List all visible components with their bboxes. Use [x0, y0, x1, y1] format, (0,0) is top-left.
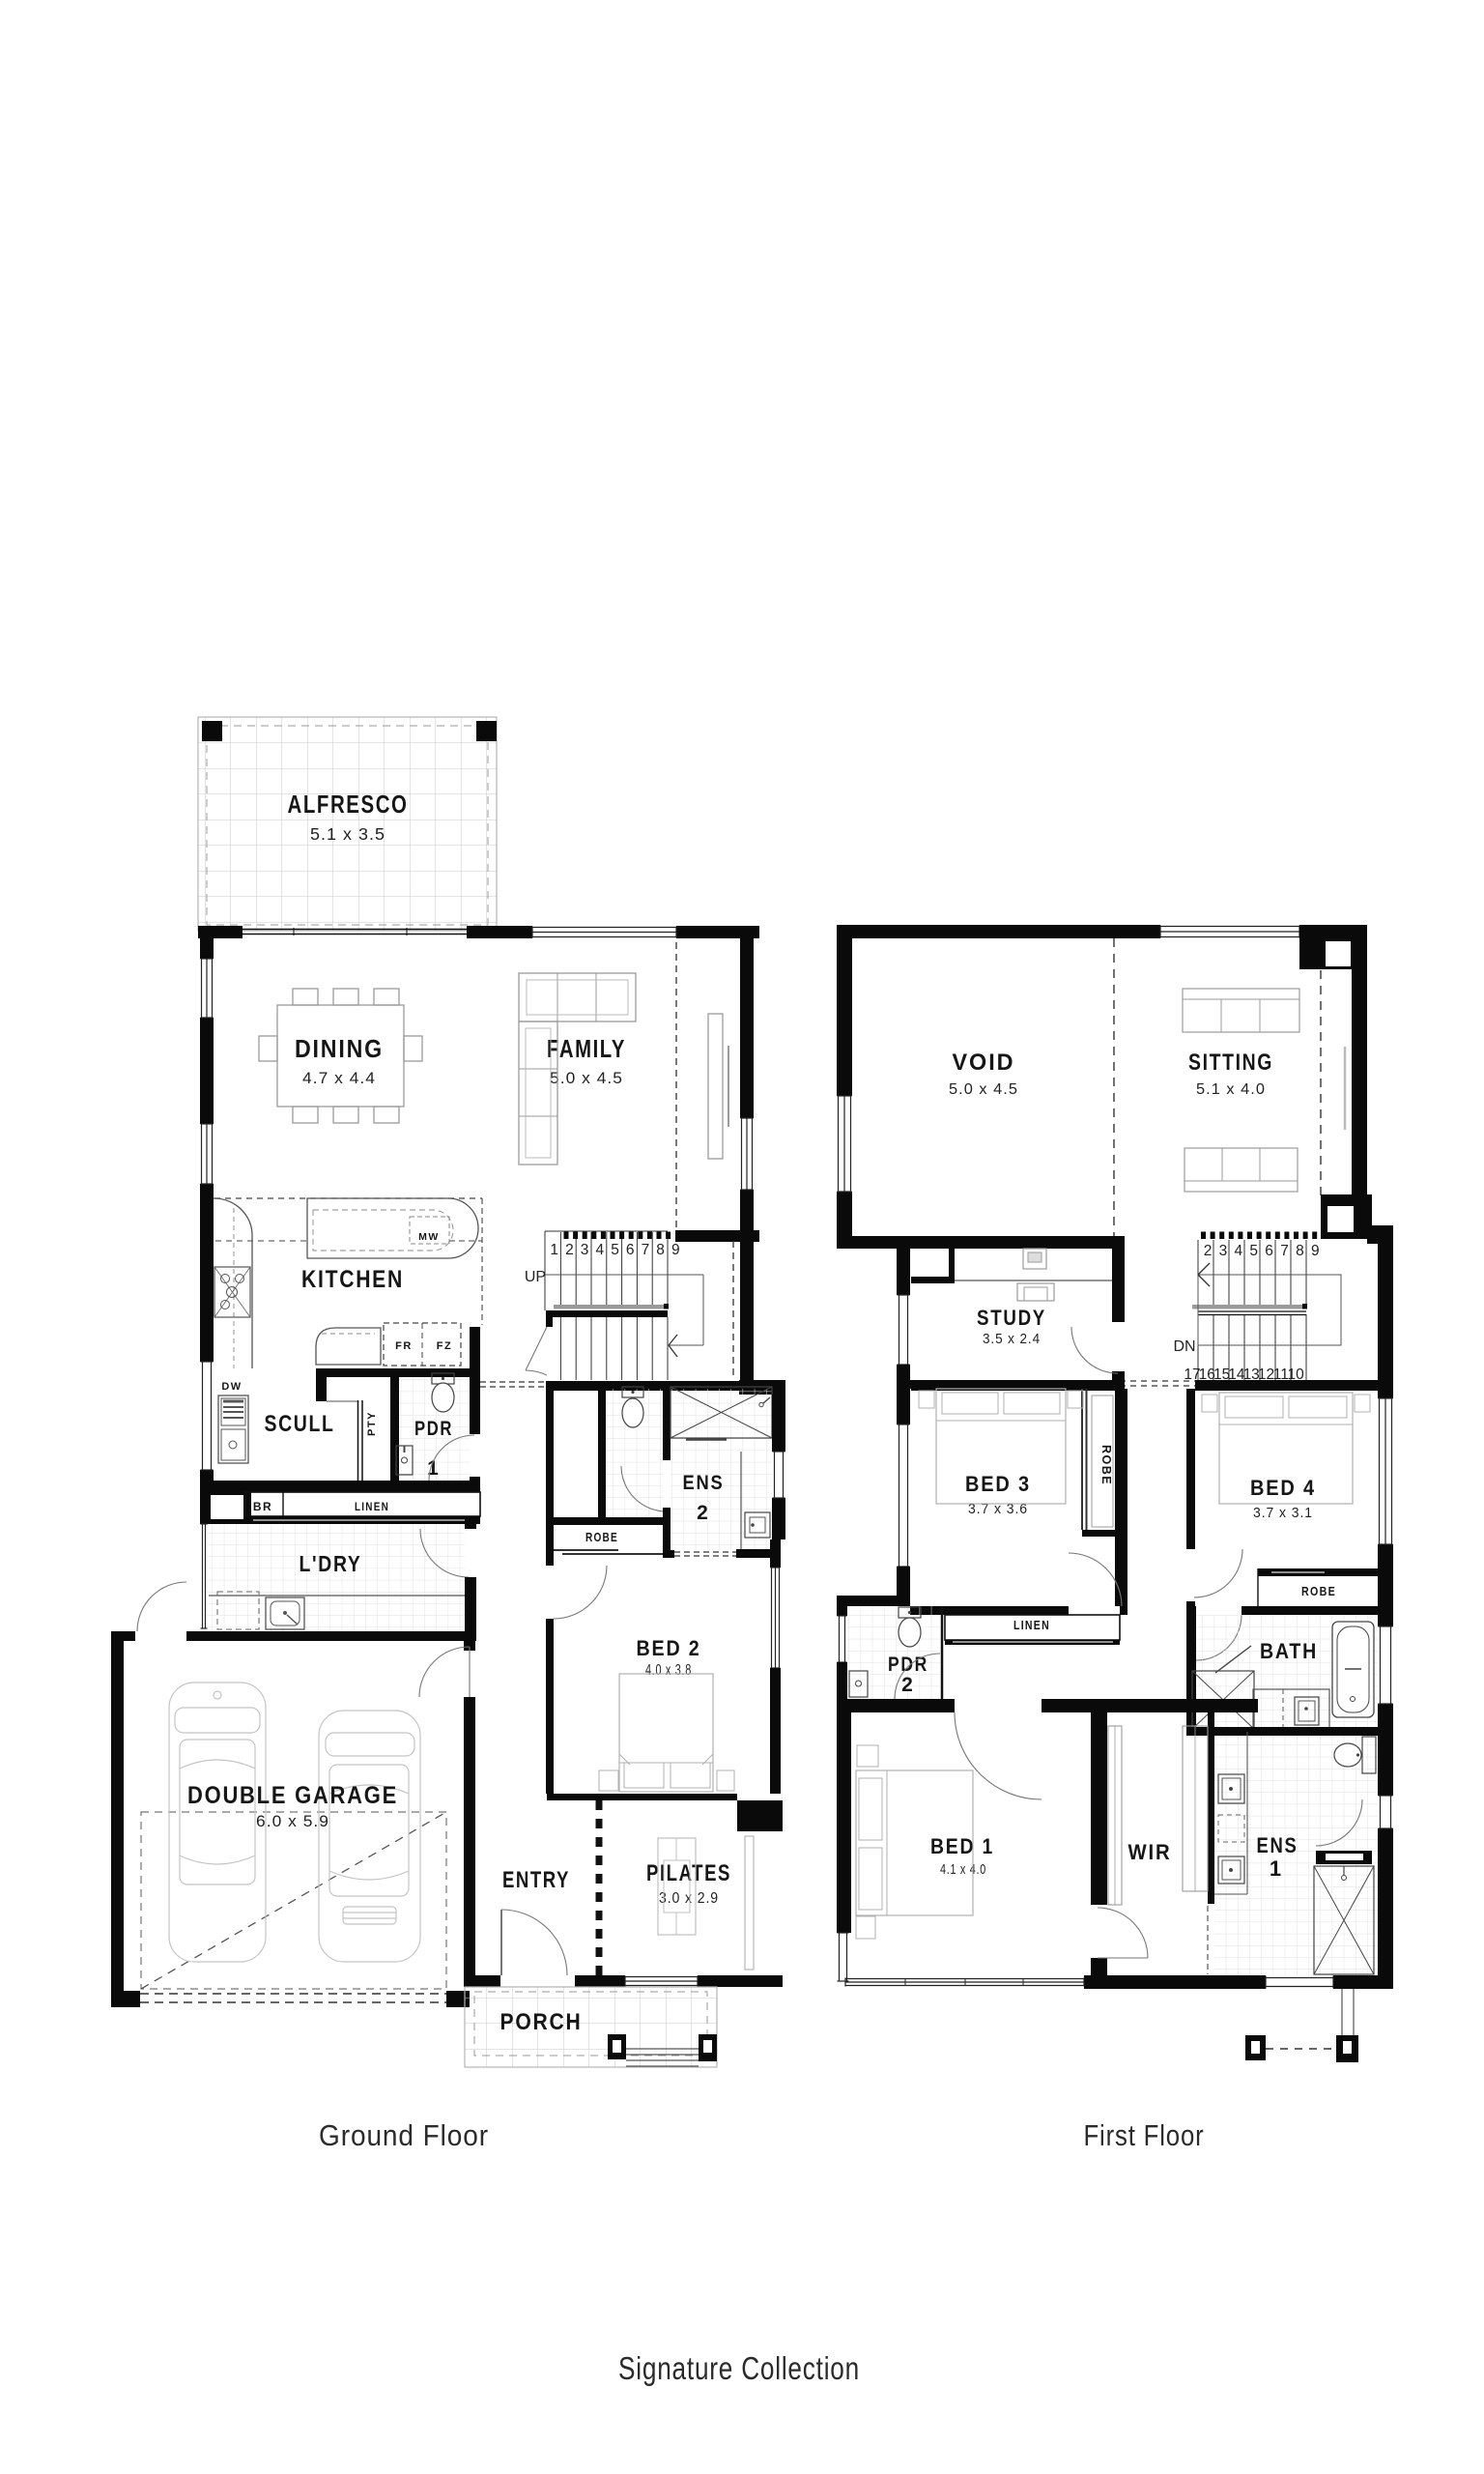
svg-text:8: 8 — [1296, 1243, 1304, 1259]
svg-text:4.0 x 3.8: 4.0 x 3.8 — [645, 1662, 692, 1679]
svg-text:BED 2: BED 2 — [637, 1636, 701, 1660]
svg-text:MW: MW — [418, 1231, 440, 1243]
svg-text:DINING: DINING — [295, 1034, 384, 1063]
svg-text:9: 9 — [671, 1242, 680, 1258]
svg-text:3: 3 — [1219, 1243, 1228, 1259]
svg-text:First Floor: First Floor — [1084, 2118, 1205, 2152]
svg-text:STUDY: STUDY — [977, 1306, 1046, 1330]
svg-text:9: 9 — [1311, 1243, 1320, 1259]
svg-text:8: 8 — [656, 1242, 665, 1258]
svg-text:5.1 x 4.0: 5.1 x 4.0 — [1196, 1081, 1266, 1098]
svg-text:Ground Floor: Ground Floor — [319, 2118, 489, 2152]
svg-text:2: 2 — [565, 1242, 574, 1258]
svg-text:LINEN: LINEN — [1013, 1619, 1050, 1632]
svg-text:LINEN: LINEN — [355, 1500, 389, 1513]
svg-text:L'DRY: L'DRY — [300, 1551, 362, 1576]
svg-text:2: 2 — [1204, 1243, 1213, 1259]
svg-text:6.0 x 5.9: 6.0 x 5.9 — [256, 1812, 329, 1830]
svg-text:PTY: PTY — [366, 1411, 378, 1436]
svg-text:5: 5 — [611, 1242, 619, 1258]
svg-text:3: 3 — [581, 1242, 589, 1258]
svg-text:BED 3: BED 3 — [965, 1472, 1031, 1496]
svg-text:5: 5 — [1249, 1243, 1258, 1259]
svg-text:SCULL: SCULL — [265, 1411, 335, 1437]
svg-text:ROBE: ROBE — [1301, 1585, 1336, 1598]
svg-text:3.5 x 2.4: 3.5 x 2.4 — [983, 1331, 1041, 1347]
svg-text:ROBE: ROBE — [585, 1531, 618, 1544]
svg-text:PILATES: PILATES — [646, 1860, 731, 1886]
svg-text:5.1 x 3.5: 5.1 x 3.5 — [310, 824, 385, 844]
svg-text:2: 2 — [901, 1674, 915, 1696]
svg-text:Signature Collection: Signature Collection — [618, 2350, 860, 2386]
svg-text:ENTRY: ENTRY — [502, 1867, 570, 1893]
svg-text:PDR: PDR — [414, 1418, 453, 1440]
svg-text:7: 7 — [1280, 1243, 1289, 1259]
svg-text:1: 1 — [1270, 1856, 1283, 1881]
svg-text:4: 4 — [595, 1242, 604, 1258]
svg-text:BED 4: BED 4 — [1250, 1476, 1316, 1500]
svg-text:4: 4 — [1234, 1243, 1242, 1259]
svg-text:4.1 x 4.0: 4.1 x 4.0 — [940, 1861, 986, 1878]
svg-text:WIR: WIR — [1128, 1840, 1172, 1864]
svg-text:2: 2 — [697, 1502, 710, 1524]
svg-text:VOID: VOID — [953, 1050, 1015, 1076]
svg-text:4.7 x 4.4: 4.7 x 4.4 — [302, 1069, 376, 1087]
svg-text:ALFRESCO: ALFRESCO — [288, 790, 409, 819]
svg-text:7: 7 — [642, 1242, 650, 1258]
svg-text:6: 6 — [1265, 1243, 1273, 1259]
svg-text:BATH: BATH — [1260, 1639, 1318, 1663]
svg-text:1: 1 — [550, 1242, 558, 1258]
svg-text:SITTING: SITTING — [1188, 1050, 1273, 1076]
svg-text:FR: FR — [395, 1340, 413, 1352]
svg-text:DN: DN — [1173, 1338, 1195, 1355]
svg-text:FZ: FZ — [437, 1340, 452, 1352]
svg-text:3.7 x 3.1: 3.7 x 3.1 — [1253, 1505, 1313, 1521]
svg-text:ENS: ENS — [683, 1472, 725, 1494]
svg-text:PORCH: PORCH — [500, 2009, 583, 2035]
svg-text:ENS: ENS — [1257, 1833, 1298, 1857]
svg-text:KITCHEN: KITCHEN — [301, 1266, 404, 1293]
svg-text:5.0 x 4.5: 5.0 x 4.5 — [949, 1081, 1018, 1098]
svg-text:DOUBLE GARAGE: DOUBLE GARAGE — [187, 1782, 398, 1809]
svg-text:6: 6 — [626, 1242, 635, 1258]
svg-text:3.0 x 2.9: 3.0 x 2.9 — [659, 1890, 719, 1907]
svg-text:BR: BR — [253, 1500, 272, 1513]
svg-text:FAMILY: FAMILY — [547, 1034, 626, 1063]
svg-text:UP: UP — [525, 1269, 546, 1285]
svg-text:DW: DW — [221, 1381, 242, 1393]
svg-text:ROBE: ROBE — [1099, 1445, 1113, 1485]
svg-text:BED 1: BED 1 — [930, 1834, 994, 1858]
svg-text:5.0 x 4.5: 5.0 x 4.5 — [550, 1069, 623, 1087]
